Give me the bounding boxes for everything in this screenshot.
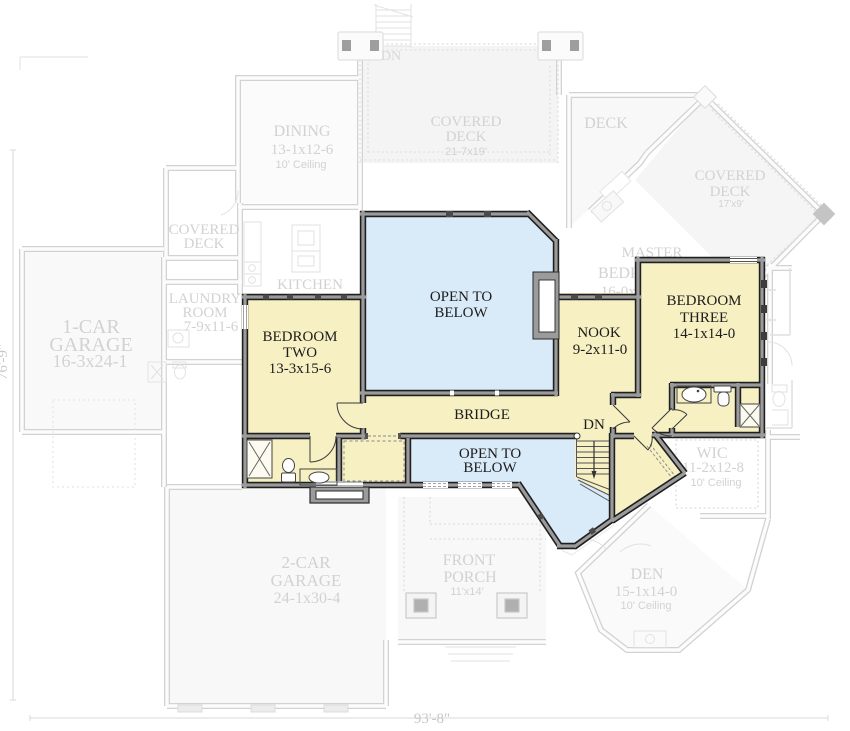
svg-text:BEDROOM: BEDROOM xyxy=(666,293,741,309)
svg-text:7-9x11-6: 7-9x11-6 xyxy=(184,319,239,335)
svg-text:24-1x30-4: 24-1x30-4 xyxy=(274,590,341,607)
svg-text:21-7x19': 21-7x19' xyxy=(445,146,487,158)
svg-text:KITCHEN: KITCHEN xyxy=(277,277,343,293)
svg-text:COVERED: COVERED xyxy=(695,168,766,184)
svg-text:OPEN TO: OPEN TO xyxy=(430,289,493,305)
svg-text:PORCH: PORCH xyxy=(443,569,497,586)
svg-text:13-1x12-6: 13-1x12-6 xyxy=(271,142,334,158)
svg-text:11-2x12-8: 11-2x12-8 xyxy=(682,460,744,476)
svg-text:10' Ceiling: 10' Ceiling xyxy=(275,159,326,171)
svg-text:93'-8": 93'-8" xyxy=(414,711,450,727)
svg-text:DN: DN xyxy=(381,49,401,64)
svg-text:76'-9": 76'-9" xyxy=(0,344,11,380)
svg-text:DEN: DEN xyxy=(631,566,664,583)
svg-text:GARAGE: GARAGE xyxy=(271,571,342,590)
svg-text:FRONT: FRONT xyxy=(443,552,496,569)
svg-text:DECK: DECK xyxy=(446,129,487,145)
svg-text:TWO: TWO xyxy=(283,345,317,361)
svg-text:BELOW: BELOW xyxy=(463,460,517,476)
svg-text:10' Ceiling: 10' Ceiling xyxy=(620,600,671,612)
svg-text:BRIDGE: BRIDGE xyxy=(454,407,510,423)
svg-text:DECK: DECK xyxy=(584,115,628,132)
svg-text:11'x14': 11'x14' xyxy=(450,586,483,598)
svg-text:DECK: DECK xyxy=(710,184,751,200)
svg-text:14-1x14-0: 14-1x14-0 xyxy=(673,326,736,342)
svg-text:DECK: DECK xyxy=(184,236,225,252)
svg-text:DN: DN xyxy=(583,417,605,433)
svg-text:10' Ceiling: 10' Ceiling xyxy=(690,477,741,489)
svg-text:16-3x24-1: 16-3x24-1 xyxy=(53,351,128,371)
svg-text:17'x9': 17'x9' xyxy=(718,199,744,210)
svg-text:15-1x14-0: 15-1x14-0 xyxy=(615,584,678,600)
svg-text:2-CAR: 2-CAR xyxy=(281,553,331,572)
svg-text:COVERED: COVERED xyxy=(431,114,502,130)
svg-text:13-3x15-6: 13-3x15-6 xyxy=(269,361,332,377)
svg-text:DINING: DINING xyxy=(274,123,331,140)
svg-text:BELOW: BELOW xyxy=(434,305,488,321)
svg-text:BEDROOM: BEDROOM xyxy=(262,329,337,345)
svg-text:NOOK: NOOK xyxy=(577,325,620,341)
svg-text:THREE: THREE xyxy=(680,310,728,326)
svg-text:9-2x11-0: 9-2x11-0 xyxy=(573,342,627,358)
